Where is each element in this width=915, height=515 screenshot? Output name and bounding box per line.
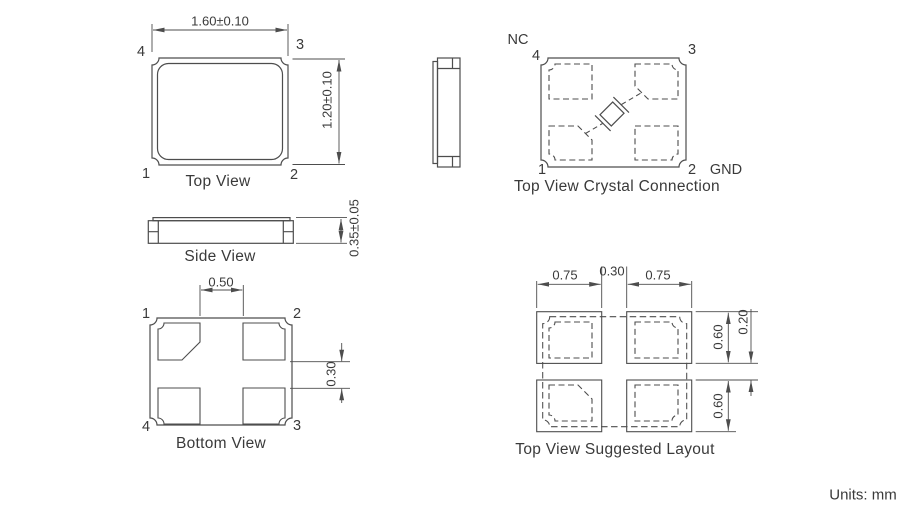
bottom-view-outline bbox=[150, 318, 292, 425]
connection-pin-3: 3 bbox=[688, 42, 696, 58]
layout-pad-height-bottom-dimension: 0.60 bbox=[711, 393, 726, 418]
layout-terminal-pads-dashed bbox=[549, 322, 678, 421]
bottom-view-pin-3: 3 bbox=[293, 418, 301, 434]
bottom-view-gap-dimension: 0.50 bbox=[208, 275, 233, 290]
layout-pad-width-left-dimension: 0.75 bbox=[552, 268, 577, 283]
bottom-view-caption: Bottom View bbox=[176, 435, 266, 453]
top-view-width-dimension: 1.60±0.10 bbox=[191, 14, 249, 29]
crystal-symbol bbox=[586, 93, 642, 134]
top-view-pin-3: 3 bbox=[296, 37, 304, 53]
connection-caption: Top View Crystal Connection bbox=[514, 178, 720, 196]
top-view-caption: Top View bbox=[185, 173, 250, 191]
layout-row-gap-dimension: 0.20 bbox=[736, 309, 751, 334]
layout-caption: Top View Suggested Layout bbox=[515, 441, 714, 459]
datasheet-drawing: 1.60±0.10 1.20±0.10 4 3 1 2 Top View Sid… bbox=[0, 0, 915, 515]
top-view-height-dimension: 1.20±0.10 bbox=[320, 71, 335, 129]
layout-pad-height-top-dimension: 0.60 bbox=[711, 324, 726, 349]
units-label: Units: mm bbox=[829, 487, 897, 504]
side-view-dimensions bbox=[296, 218, 347, 244]
crystal-connection-pads bbox=[549, 64, 678, 160]
layout-gap-dimension: 0.30 bbox=[599, 264, 624, 279]
bottom-view-rowgap-dimension: 0.30 bbox=[324, 361, 339, 386]
connection-pin-2: 2 bbox=[688, 162, 696, 178]
bottom-view-pads bbox=[158, 323, 285, 424]
bottom-view-pin-1: 1 bbox=[142, 306, 150, 322]
drawing-lineart bbox=[0, 0, 915, 515]
top-view-pin-1: 1 bbox=[142, 166, 150, 182]
bottom-view-pin-2: 2 bbox=[293, 306, 301, 322]
layout-copper-pads bbox=[537, 312, 692, 432]
connection-pin-4: 4 bbox=[532, 48, 540, 64]
layout-pad-width-right-dimension: 0.75 bbox=[645, 268, 670, 283]
crystal-connection-outline bbox=[541, 58, 686, 167]
top-view-pin-4: 4 bbox=[137, 44, 145, 60]
connection-pin-1: 1 bbox=[538, 162, 546, 178]
side-view-caption: Side View bbox=[184, 248, 255, 266]
layout-package-outline-dashed bbox=[543, 317, 687, 427]
side-view-outline bbox=[148, 218, 293, 244]
top-view-outline bbox=[152, 58, 288, 165]
top-view-pin-2: 2 bbox=[290, 167, 298, 183]
bottom-view-pin-4: 4 bbox=[142, 419, 150, 435]
end-view-outline bbox=[433, 58, 460, 167]
connection-nc-label: NC bbox=[508, 32, 529, 48]
top-view-dimensions bbox=[152, 24, 345, 165]
connection-gnd-label: GND bbox=[710, 162, 742, 178]
side-view-thickness-dimension: 0.35±0.05 bbox=[347, 199, 362, 257]
